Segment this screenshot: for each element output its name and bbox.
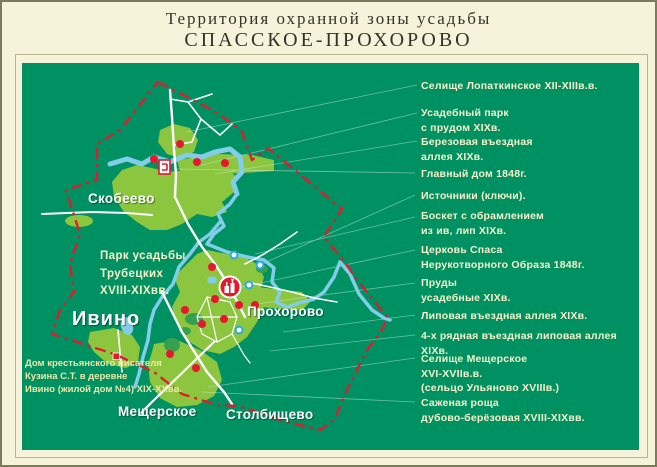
skobeevo-spur-road2	[188, 94, 212, 102]
estate-pond	[207, 277, 217, 284]
village-label-stolbishchevo: Столбищево	[226, 407, 313, 422]
legend-item-istochniki: Источники (ключи).	[421, 189, 636, 204]
red-dot-icon	[220, 315, 228, 323]
village-label-skobeevo: Скобеево	[88, 191, 155, 206]
red-dot-icon	[193, 158, 201, 166]
legend-item-prudy: Пруды усадебные XIXв.	[421, 276, 636, 305]
main-house-icon	[159, 160, 170, 174]
trubetskoy-park-note: Парк усадьбы Трубецких XVIII-XIXвв.	[100, 248, 186, 301]
red-dot-icon	[150, 155, 158, 163]
kuzin-house-note: Дом крестьянского писателя Кузина С.Т. в…	[25, 357, 182, 396]
red-dot-icon	[192, 364, 200, 372]
spring-icon	[231, 252, 238, 259]
red-dot-icon	[221, 159, 229, 167]
spring-icon	[236, 327, 243, 334]
red-dot-icon	[211, 295, 219, 303]
poster-title-line1: Территория охранной зоны усадьбы	[2, 9, 655, 29]
grove	[164, 338, 180, 352]
village-label-prokhorovo: Прохорово	[247, 304, 324, 319]
legend-item-glavny-dom: Главный дом 1848г.	[421, 167, 636, 182]
legend-item-selishche-meshcherskoye: Селище Мещерское XVI-XVIIв.в. (сельцо Ул…	[421, 352, 636, 396]
legend-item-tserkov-spasa: Церковь Спаса Нерукотворного Образа 1848…	[421, 243, 636, 272]
legend-item-lipovaya-alleya: Липовая въездная аллея XIXв.	[421, 309, 636, 324]
village-label-meshcherskoye: Мещерское	[118, 404, 196, 419]
red-dot-icon	[198, 320, 206, 328]
legend-item-berezovaya-alleya: Березовая въездная аллея XIXв.	[421, 135, 636, 164]
church-icon	[220, 277, 241, 298]
legend-item-selishche-lopatkinskoye: Селище Лопаткинское XII-XIIIв.в.	[421, 79, 636, 94]
spring-icon	[246, 282, 253, 289]
red-dot-icon	[181, 306, 189, 314]
red-dot-icon	[176, 140, 184, 148]
legend-item-usadebny-park: Усадебный парк с прудом XIXв.	[421, 106, 636, 135]
west-field-area	[65, 215, 93, 227]
legend-item-bosket: Боскет с обрамлением из ив, лип XIXв.	[421, 209, 636, 238]
northeast-road	[245, 232, 297, 264]
estate-map-poster: Территория охранной зоны усадьбы СПАССКО…	[0, 0, 657, 467]
red-dot-icon	[235, 301, 243, 309]
map-panel: Скобеево Ивино Прохорово Мещерское Столб…	[22, 63, 639, 450]
spring-icon	[257, 262, 264, 269]
village-label-ivino: Ивино	[72, 308, 140, 331]
poster-title-line2: СПАССКОЕ-ПРОХОРОВО	[2, 29, 655, 52]
red-dot-icon	[208, 263, 216, 271]
legend-item-sazhenaya-roshcha: Саженая роща дубово-берёзовая XVIII-XIXв…	[421, 396, 636, 425]
